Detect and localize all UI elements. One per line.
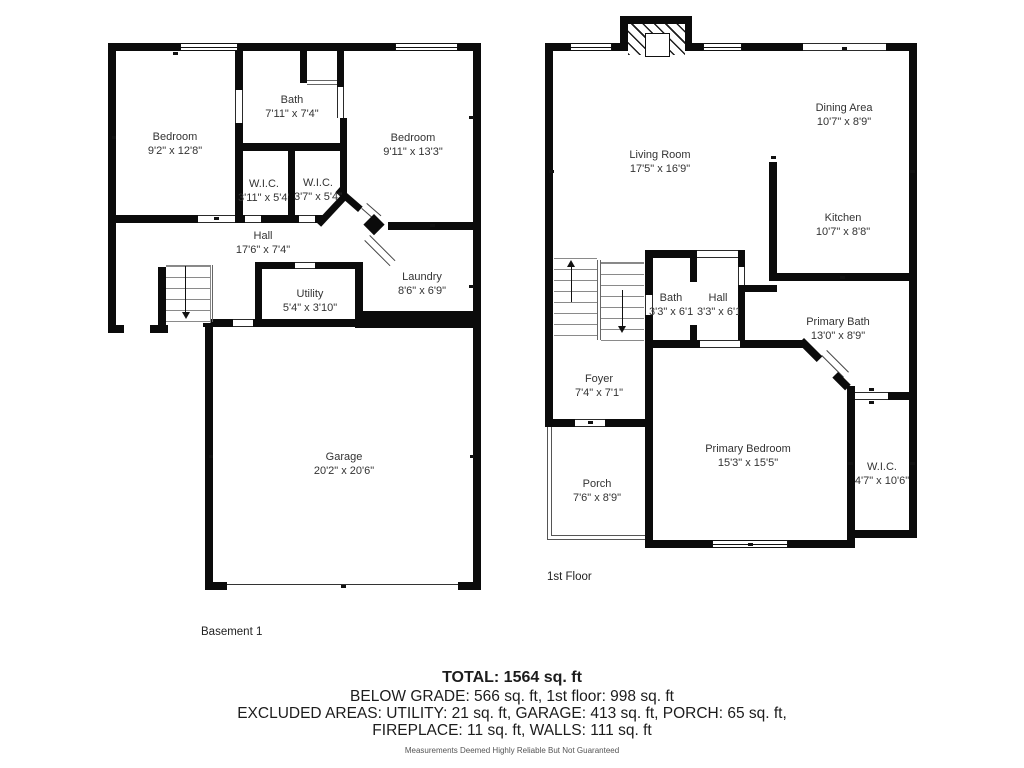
wall xyxy=(238,43,395,51)
summary-below-grade: BELOW GRADE: 566 sq. ft, 1st floor: 998 … xyxy=(0,688,1024,706)
room-dims: 9'2" x 12'8" xyxy=(110,144,240,158)
wall xyxy=(108,43,116,333)
stair-down-arrow xyxy=(182,312,190,319)
tick xyxy=(869,401,874,404)
window xyxy=(395,43,458,51)
door-jamb-line xyxy=(826,350,849,373)
room-label-primary-bedroom: Primary Bedroom 15'3" x 15'5" xyxy=(683,442,813,470)
tick xyxy=(549,170,554,173)
tick xyxy=(869,388,874,391)
room-dims: 3'3" x 6'11" xyxy=(697,305,739,319)
wall xyxy=(337,51,344,87)
floorplan-page: Bedroom 9'2" x 12'8" Bath 7'11" x 7'4" B… xyxy=(0,0,1024,768)
wall xyxy=(685,43,703,51)
room-name: Dining Area xyxy=(779,101,909,115)
room-name: Bedroom xyxy=(110,130,240,144)
wall xyxy=(235,51,243,90)
wall xyxy=(769,162,777,280)
room-name: Hall xyxy=(198,229,328,243)
wall xyxy=(300,51,307,83)
wall xyxy=(355,311,481,328)
room-label-laundry: Laundry 8'6" x 6'9" xyxy=(357,270,487,298)
tick xyxy=(848,462,853,465)
stair-arrow-stem xyxy=(185,266,186,312)
door-opening xyxy=(295,262,315,269)
stair-down-arrow xyxy=(618,326,626,333)
tick xyxy=(209,455,213,458)
room-dims: 8'6" x 6'9" xyxy=(357,284,487,298)
room-dims: 17'6" x 7'4" xyxy=(198,243,328,257)
wall xyxy=(108,325,124,333)
wall xyxy=(205,582,227,590)
tick xyxy=(910,170,915,173)
summary-disclaimer: Measurements Deemed Highly Reliable But … xyxy=(0,746,1024,755)
room-dims: 7'6" x 8'9" xyxy=(532,491,662,505)
room-label-hall: Hall 17'6" x 7'4" xyxy=(198,229,328,257)
room-dims: 4'7" x 10'6" xyxy=(854,474,910,488)
tick xyxy=(469,116,474,119)
wall xyxy=(158,267,166,333)
stair-arrow-stem xyxy=(571,266,572,302)
tick xyxy=(173,52,178,55)
summary-excluded-2: FIREPLACE: 11 sq. ft, WALLS: 111 sq. ft xyxy=(0,722,1024,740)
stair-arrow-stem xyxy=(622,290,623,326)
room-dims: 20'2" x 20'6" xyxy=(279,464,409,478)
wall xyxy=(738,250,745,267)
wall xyxy=(738,285,777,292)
door-opening xyxy=(245,215,261,223)
stair-rail-line xyxy=(212,265,213,322)
room-dims: 17'5" x 16'9" xyxy=(595,162,725,176)
tick xyxy=(341,585,346,588)
wall xyxy=(888,392,909,400)
room-label-porch: Porch 7'6" x 8'9" xyxy=(532,477,662,505)
room-dims: 3'11" x 5'4" xyxy=(238,191,290,205)
wall xyxy=(238,143,344,151)
stair-up-arrow xyxy=(567,260,575,267)
room-dims: 5'4" x 3'10" xyxy=(267,301,353,315)
wall xyxy=(255,262,262,319)
door-opening xyxy=(700,340,740,348)
room-dims: 15'3" x 15'5" xyxy=(683,456,813,470)
room-name: Porch xyxy=(532,477,662,491)
room-label-wic-left: W.I.C. 3'11" x 5'4" xyxy=(238,177,290,205)
tick xyxy=(842,47,847,50)
wall xyxy=(253,319,355,327)
room-name: W.I.C. xyxy=(293,176,343,190)
wall-opening xyxy=(697,250,738,258)
wall xyxy=(235,215,245,223)
window xyxy=(570,43,612,51)
stair-rail-line xyxy=(597,260,598,340)
room-label-foyer: Foyer 7'4" x 7'1" xyxy=(534,372,664,400)
summary-excluded-1: EXCLUDED AREAS: UTILITY: 21 sq. ft, GARA… xyxy=(0,705,1024,723)
room-name: Primary Bedroom xyxy=(683,442,813,456)
wall xyxy=(645,340,700,348)
room-dims: 3'7" x 5'4" xyxy=(293,190,343,204)
room-dims: 7'11" x 7'4" xyxy=(227,107,357,121)
room-dims: 7'4" x 7'1" xyxy=(534,386,664,400)
room-name: Bath xyxy=(227,93,357,107)
tick xyxy=(214,217,219,220)
wall xyxy=(108,43,180,51)
room-dims: 10'7" x 8'9" xyxy=(779,115,909,129)
room-label-wic-right: W.I.C. 3'7" x 5'4" xyxy=(293,176,343,204)
stairs xyxy=(554,258,597,341)
tick xyxy=(470,455,474,458)
room-name: W.I.C. xyxy=(854,460,910,474)
tick xyxy=(588,421,593,424)
room-name: Laundry xyxy=(357,270,487,284)
room-name: Foyer xyxy=(534,372,664,386)
room-label-dining-area: Dining Area 10'7" x 8'9" xyxy=(779,101,909,129)
room-name: Utility xyxy=(267,287,353,301)
room-label-bath-1f: Bath 3'3" x 6'11" xyxy=(649,291,693,319)
wall xyxy=(605,419,653,427)
room-name: Bedroom xyxy=(348,131,478,145)
wall xyxy=(738,285,745,347)
wall xyxy=(645,250,653,295)
room-dims: 13'0" x 8'9" xyxy=(773,329,903,343)
door-opening xyxy=(738,267,745,285)
door-opening xyxy=(855,392,888,400)
wall xyxy=(473,328,481,590)
basement-title: Basement 1 xyxy=(201,626,262,638)
room-label-bath: Bath 7'11" x 7'4" xyxy=(227,93,357,121)
room-dims: 3'3" x 6'11" xyxy=(649,305,693,319)
tick xyxy=(430,224,435,227)
tick xyxy=(771,156,776,159)
wall xyxy=(545,43,553,427)
room-label-living-room: Living Room 17'5" x 16'9" xyxy=(595,148,725,176)
door-opening xyxy=(233,319,253,327)
wall xyxy=(108,215,198,223)
window xyxy=(180,43,238,51)
tick xyxy=(840,276,845,279)
room-name: Kitchen xyxy=(778,211,908,225)
room-label-bedroom-left: Bedroom 9'2" x 12'8" xyxy=(110,130,240,158)
room-label-bedroom-right: Bedroom 9'11" x 13'3" xyxy=(348,131,478,159)
wall xyxy=(261,215,299,223)
room-name: Hall xyxy=(697,291,739,305)
room-label-utility: Utility 5'4" x 3'10" xyxy=(267,287,353,315)
room-label-hall-1f: Hall 3'3" x 6'11" xyxy=(697,291,739,319)
first-floor-title: 1st Floor xyxy=(547,571,592,583)
wall xyxy=(690,257,697,282)
room-label-garage: Garage 20'2" x 20'6" xyxy=(279,450,409,478)
window xyxy=(703,43,742,51)
wall xyxy=(545,419,575,427)
shelf-line xyxy=(307,84,337,85)
shelf-line xyxy=(307,80,337,81)
room-label-kitchen: Kitchen 10'7" x 8'8" xyxy=(778,211,908,239)
tick xyxy=(910,462,915,465)
room-name: Primary Bath xyxy=(773,315,903,329)
corner-wall xyxy=(363,214,384,235)
room-name: Garage xyxy=(279,450,409,464)
room-label-wic-1f: W.I.C. 4'7" x 10'6" xyxy=(854,460,910,488)
room-name: Living Room xyxy=(595,148,725,162)
door-opening xyxy=(299,215,315,223)
tick xyxy=(748,543,753,546)
summary-total: TOTAL: 1564 sq. ft xyxy=(0,669,1024,687)
room-dims: 10'7" x 8'8" xyxy=(778,225,908,239)
room-dims: 9'11" x 13'3" xyxy=(348,145,478,159)
room-name: Bath xyxy=(649,291,693,305)
fireplace-firebox xyxy=(645,33,670,57)
room-label-primary-bath: Primary Bath 13'0" x 8'9" xyxy=(773,315,903,343)
wall xyxy=(847,530,917,538)
wall xyxy=(742,43,803,51)
room-name: W.I.C. xyxy=(238,177,290,191)
